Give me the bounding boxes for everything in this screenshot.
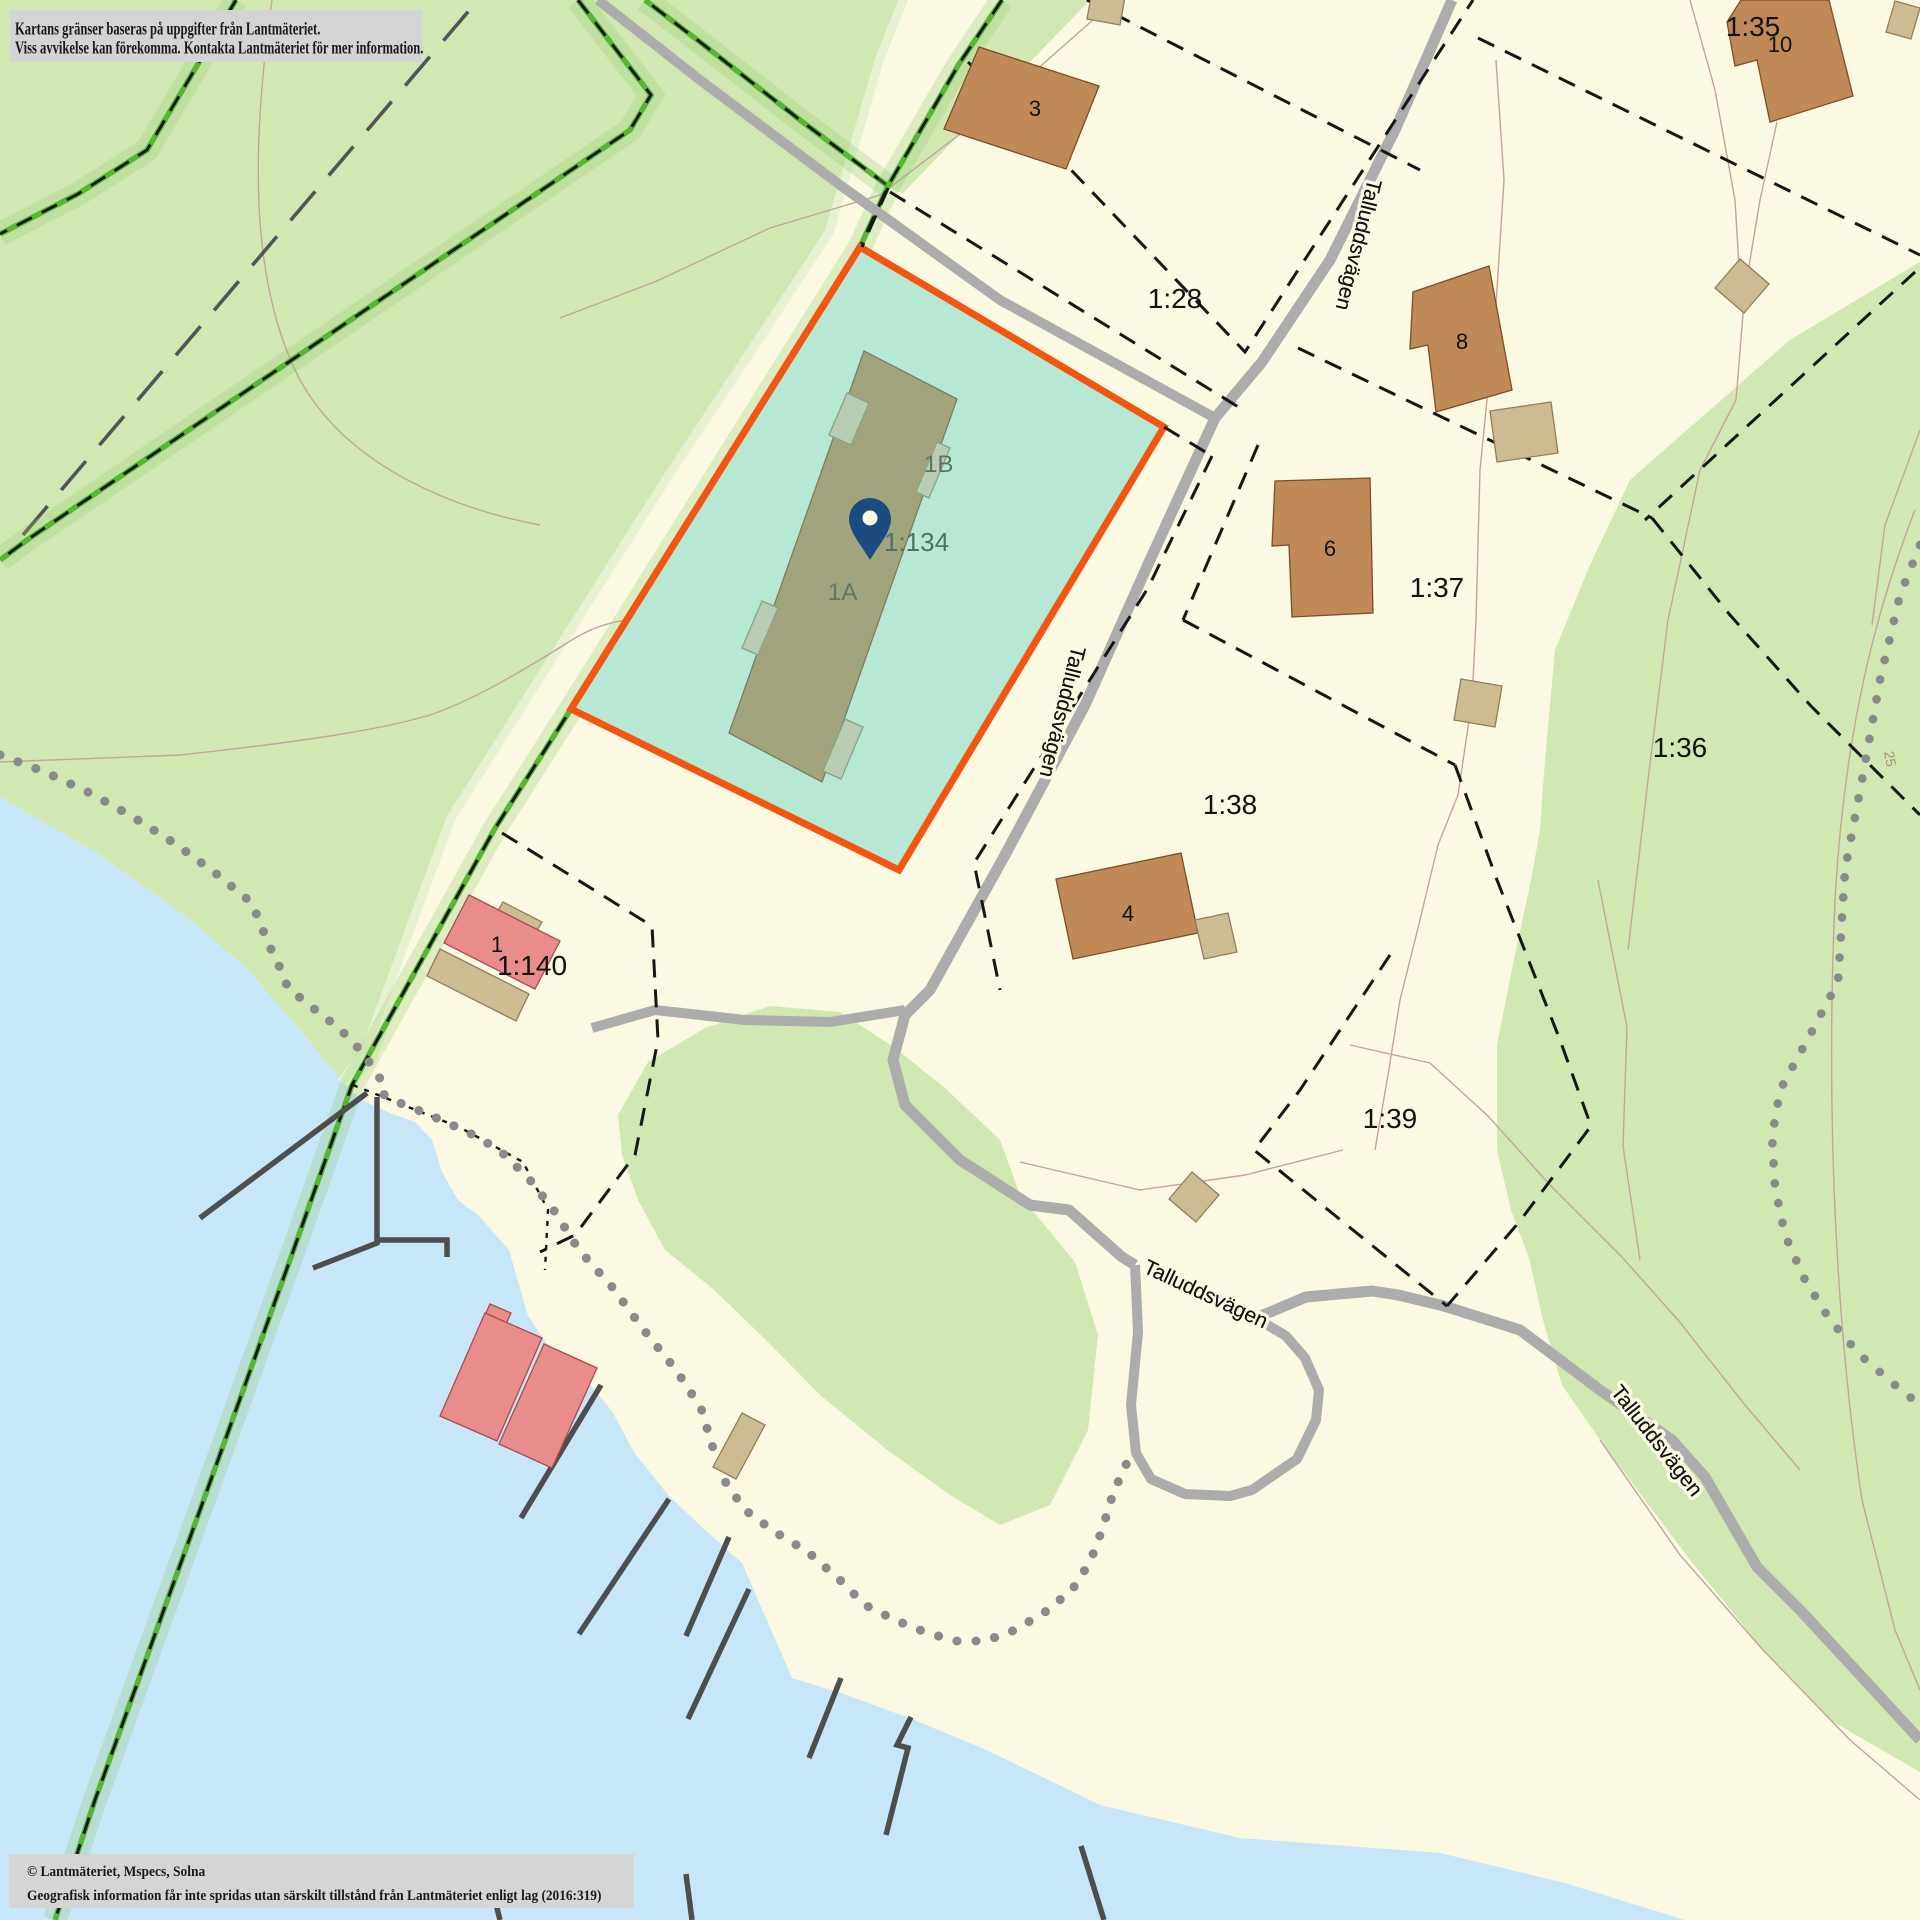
svg-text:25: 25 — [1881, 750, 1899, 768]
svg-text:8: 8 — [1456, 329, 1468, 354]
svg-text:1:39: 1:39 — [1363, 1103, 1418, 1134]
svg-text:Geografisk information får int: Geografisk information får inte spridas … — [27, 1889, 602, 1905]
svg-text:© Lantmäteriet, Mspecs, Solna: © Lantmäteriet, Mspecs, Solna — [27, 1865, 205, 1881]
svg-text:6: 6 — [1324, 536, 1336, 561]
svg-text:3: 3 — [1029, 96, 1041, 121]
svg-text:Viss avvikelse kan förekomma.: Viss avvikelse kan förekomma. Kontakta L… — [15, 38, 424, 58]
svg-text:1:37: 1:37 — [1410, 572, 1465, 603]
svg-text:1A: 1A — [828, 579, 857, 606]
svg-text:1:38: 1:38 — [1203, 789, 1258, 820]
svg-text:1:36: 1:36 — [1653, 732, 1708, 763]
svg-text:1B: 1B — [924, 451, 953, 478]
svg-text:1: 1 — [491, 932, 503, 957]
svg-text:1:28: 1:28 — [1148, 283, 1203, 314]
svg-text:1:134: 1:134 — [884, 527, 949, 557]
svg-text:4: 4 — [1122, 901, 1134, 926]
svg-text:Kartans gränser baseras på upp: Kartans gränser baseras på uppgifter frå… — [15, 19, 320, 39]
svg-text:1:140: 1:140 — [497, 950, 567, 981]
svg-text:10: 10 — [1768, 32, 1792, 57]
